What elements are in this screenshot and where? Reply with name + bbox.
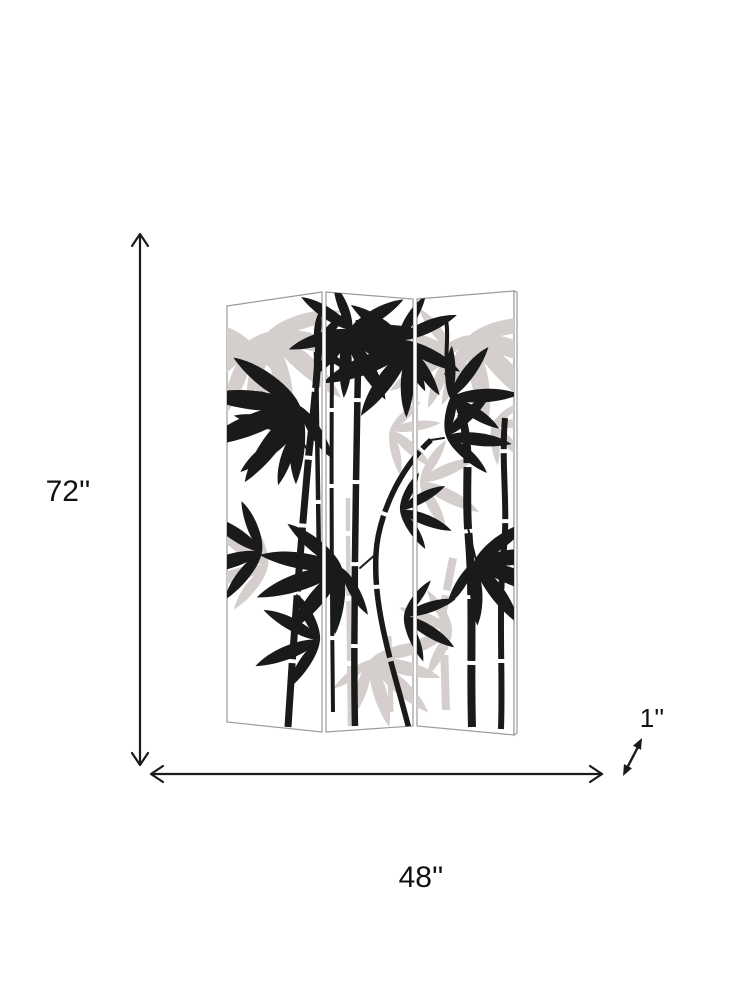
depth-arrow <box>619 736 646 778</box>
dimension-diagram-canvas: 72'' 48'' 1'' <box>0 0 750 1000</box>
height-label: 72'' <box>46 475 91 508</box>
depth-label: 1'' <box>640 703 664 733</box>
panel-right-edge-thickness <box>514 291 517 735</box>
arrow-up-right-icon <box>633 736 646 750</box>
width-label: 48'' <box>399 861 444 894</box>
arrow-down-left-icon <box>619 764 632 778</box>
height-arrow <box>132 234 148 765</box>
product-dimension-diagram: 72'' 48'' 1'' <box>0 0 750 1000</box>
width-arrow <box>151 766 602 782</box>
bamboo-stalk <box>316 352 319 562</box>
